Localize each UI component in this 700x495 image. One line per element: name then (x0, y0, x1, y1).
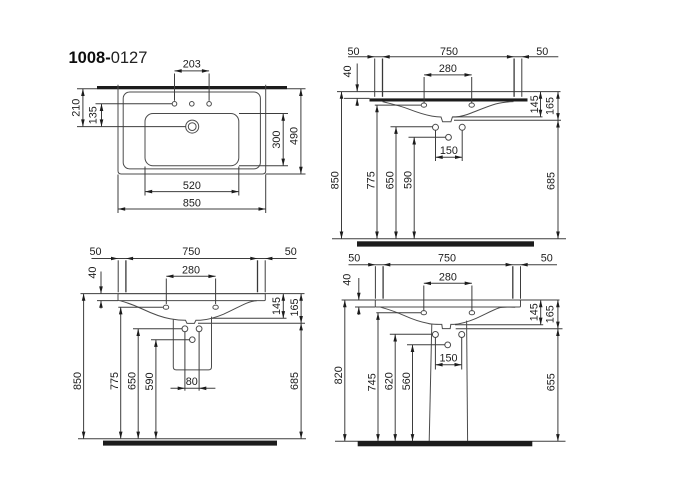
svg-text:590: 590 (403, 171, 415, 189)
svg-text:520: 520 (183, 180, 201, 192)
svg-text:135: 135 (88, 106, 100, 124)
svg-text:50: 50 (285, 246, 297, 258)
svg-text:150: 150 (440, 145, 458, 157)
svg-text:50: 50 (536, 46, 548, 58)
svg-text:40: 40 (342, 65, 354, 77)
svg-text:750: 750 (438, 253, 456, 265)
svg-text:820: 820 (333, 366, 345, 384)
svg-text:650: 650 (384, 171, 396, 189)
svg-text:750: 750 (440, 46, 458, 58)
svg-text:685: 685 (546, 172, 558, 190)
svg-text:40: 40 (87, 267, 99, 279)
svg-text:300: 300 (271, 131, 283, 149)
svg-text:590: 590 (144, 372, 156, 390)
svg-text:280: 280 (439, 63, 457, 75)
svg-text:165: 165 (289, 298, 301, 316)
svg-text:40: 40 (342, 274, 354, 286)
svg-text:850: 850 (330, 171, 342, 189)
svg-text:850: 850 (183, 198, 201, 210)
svg-text:203: 203 (183, 59, 201, 71)
svg-text:50: 50 (541, 253, 553, 265)
svg-text:655: 655 (545, 373, 557, 391)
svg-text:150: 150 (440, 352, 458, 364)
svg-text:650: 650 (127, 372, 139, 390)
svg-text:850: 850 (72, 372, 84, 390)
svg-text:560: 560 (401, 372, 413, 390)
svg-text:50: 50 (348, 253, 360, 265)
svg-text:145: 145 (529, 95, 541, 113)
svg-text:80: 80 (186, 376, 198, 388)
svg-text:775: 775 (365, 171, 377, 189)
svg-text:750: 750 (182, 246, 200, 258)
svg-text:165: 165 (544, 97, 556, 115)
svg-text:745: 745 (366, 373, 378, 391)
svg-text:280: 280 (182, 264, 200, 276)
svg-text:685: 685 (289, 372, 301, 390)
svg-text:620: 620 (384, 372, 396, 390)
svg-text:280: 280 (439, 271, 457, 283)
svg-text:1008-0127: 1008-0127 (69, 49, 148, 67)
svg-text:145: 145 (528, 303, 540, 321)
svg-text:490: 490 (288, 127, 300, 145)
svg-text:775: 775 (109, 372, 121, 390)
svg-text:210: 210 (71, 99, 83, 117)
svg-text:50: 50 (347, 46, 359, 58)
svg-text:165: 165 (544, 305, 556, 323)
svg-text:145: 145 (271, 297, 283, 315)
svg-text:50: 50 (89, 246, 101, 258)
